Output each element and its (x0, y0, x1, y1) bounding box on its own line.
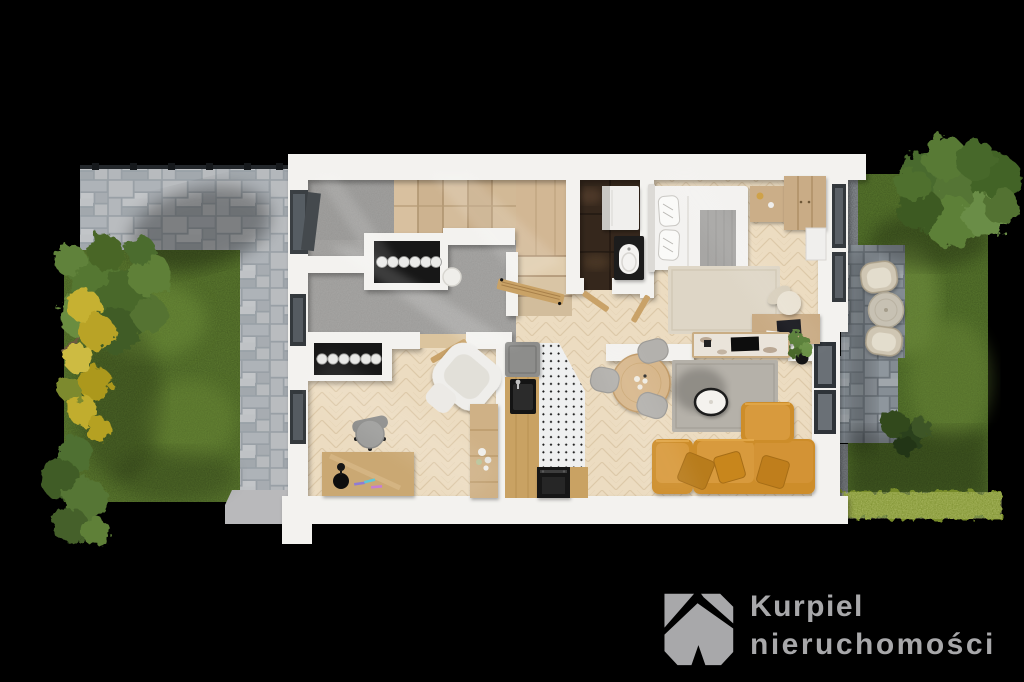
hall-stool (443, 268, 461, 286)
toilet (614, 236, 644, 280)
oven (537, 467, 570, 498)
coffee-table (695, 389, 727, 415)
desk-lamp (333, 473, 349, 489)
nightstand (750, 186, 784, 222)
tv (731, 337, 759, 352)
washing-machine (602, 186, 639, 230)
terrace-chair-top (859, 260, 899, 295)
kitchen-counter-right (570, 467, 588, 498)
kitchen-counter (505, 377, 539, 498)
tv-console (692, 332, 790, 358)
dresser (806, 228, 826, 260)
fence-line (80, 165, 288, 169)
brand-name-line2: nieruchomości (750, 628, 996, 661)
terrace-table (869, 293, 904, 328)
driveway-strip (240, 250, 288, 492)
floor-plan-render: Kurpiel nieruchomości (0, 0, 1024, 682)
office-desk (322, 452, 414, 496)
wall-bottom (288, 496, 848, 524)
brand-name-line1: Kurpiel (750, 590, 864, 623)
fridge (505, 342, 540, 377)
wardrobe (784, 176, 826, 230)
left-yard (41, 163, 310, 546)
